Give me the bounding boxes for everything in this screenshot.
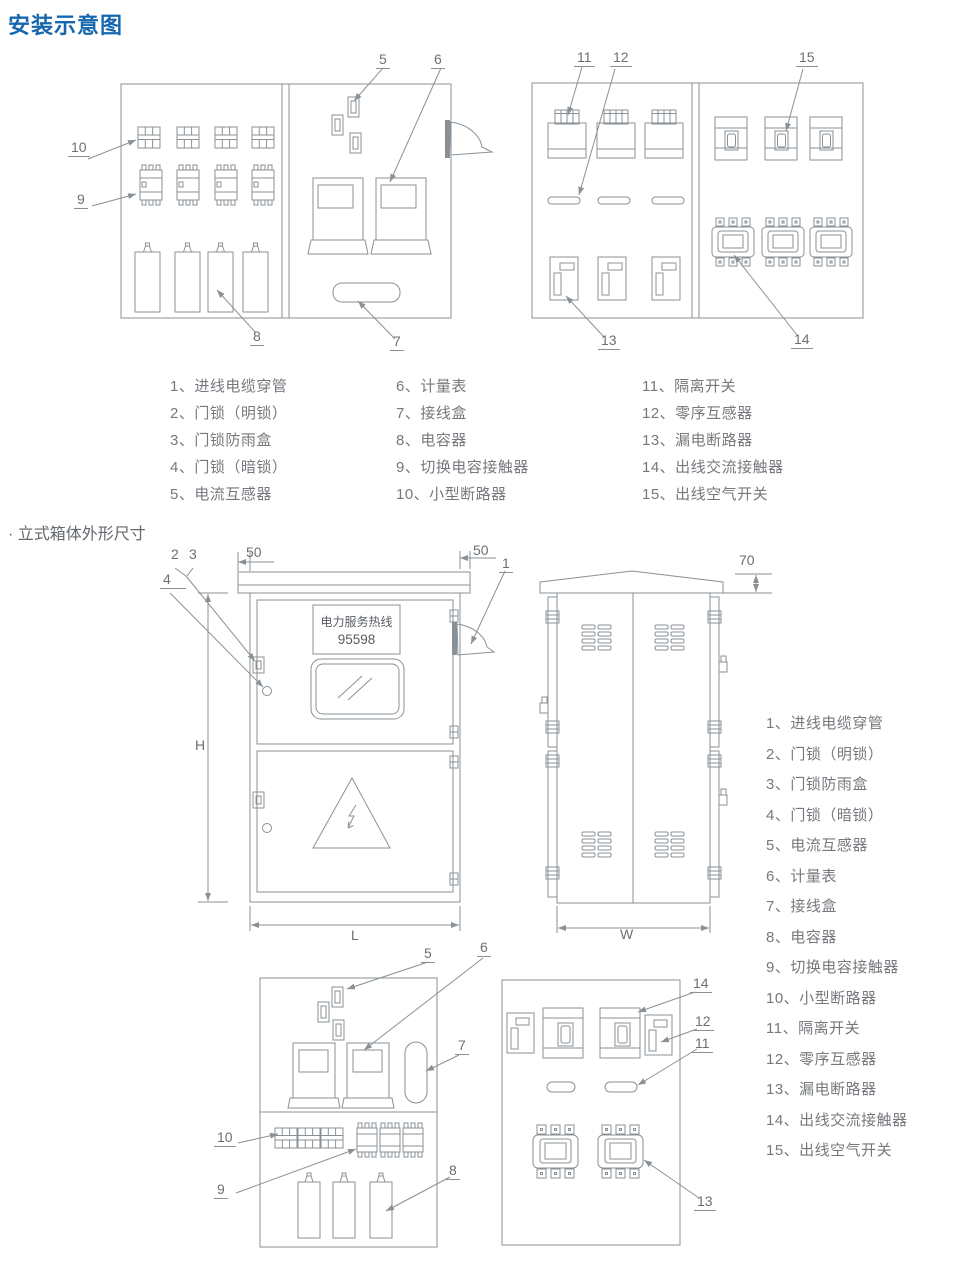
dim-70: 70 (739, 553, 755, 568)
meters (308, 178, 431, 254)
leakage-breaker-row (550, 257, 680, 300)
ac-contactor-row (533, 1125, 643, 1178)
callout-12: 12 (610, 50, 632, 67)
legend-item: 7、接线盒 (396, 402, 467, 423)
legend-item: 7、接线盒 (766, 895, 837, 916)
legend-item: 6、计量表 (766, 865, 837, 886)
legend-item: 1、进线电缆穿管 (170, 375, 287, 396)
bottom-left-cabinet-drawing (210, 945, 500, 1261)
warning-triangle (313, 778, 390, 848)
current-transformers (332, 97, 361, 153)
dimension-lines (557, 574, 772, 933)
legend-item: 1、进线电缆穿管 (766, 712, 883, 733)
legend-item: 11、隔离开关 (766, 1017, 860, 1038)
legend-item: 15、出线空气开关 (642, 483, 768, 504)
callout-11: 11 (692, 1036, 713, 1053)
junction-box-symbol (405, 1042, 427, 1103)
legend-item: 12、零序互感器 (642, 402, 753, 423)
legend-item: 3、门锁防雨盒 (170, 429, 272, 450)
callout-15: 15 (796, 50, 818, 67)
page-title: 安装示意图 (8, 8, 123, 40)
meters (288, 1043, 394, 1108)
legend-item: 5、电流互感器 (766, 834, 868, 855)
callout-7: 7 (455, 1038, 469, 1055)
callout-5: 5 (421, 946, 435, 963)
legend-item: 15、出线空气开关 (766, 1139, 892, 1160)
legend-item: 6、计量表 (396, 375, 467, 396)
isolating-switch-row (548, 110, 683, 158)
callout-4: 4 (160, 572, 186, 589)
cable-conduit-symbol (452, 622, 494, 655)
callout-8: 8 (446, 1163, 460, 1180)
upper-door-lock (253, 657, 264, 673)
dim-H: H (195, 738, 205, 753)
callout-3: 3 (186, 547, 200, 563)
mini-breaker-row (275, 1128, 343, 1148)
capacitor-row (135, 243, 268, 312)
mini-breaker-row (138, 127, 274, 148)
lower-door (257, 751, 453, 892)
callout-2: 2 (168, 547, 182, 563)
bottom-right-cabinet-drawing (490, 955, 760, 1261)
legend-item: 3、门锁防雨盒 (766, 773, 868, 794)
leader-lines (638, 992, 699, 1198)
callout-14: 14 (791, 332, 813, 349)
legend-item: 10、小型断路器 (766, 987, 877, 1008)
upper-hidden-lock (263, 687, 272, 696)
top-right-cabinet-drawing (510, 55, 930, 365)
installation-diagram-page: 安装示意图 (0, 0, 976, 1261)
legend-item: 11、隔离开关 (642, 375, 736, 396)
hotline-label: 电力服务热线 95598 (313, 605, 400, 654)
legend-item: 9、切换电容接触器 (396, 456, 529, 477)
callout-12: 12 (692, 1014, 714, 1031)
legend-item: 8、电容器 (396, 429, 467, 450)
legend-item: 14、出线交流接触器 (642, 456, 784, 477)
top-left-cabinet-drawing (70, 55, 510, 365)
cabinet-side-view-drawing (520, 545, 790, 945)
air-switch-row (715, 117, 842, 160)
callout-6: 6 (431, 52, 445, 69)
callout-8: 8 (250, 329, 264, 346)
legend-item: 2、门锁（明锁） (766, 743, 883, 764)
callout-10: 10 (214, 1130, 236, 1147)
legend-item: 8、电容器 (766, 926, 837, 947)
leader-lines (566, 67, 803, 337)
dim-50-right: 50 (473, 543, 489, 558)
zero-seq-ct-row (548, 197, 684, 204)
legend-item: 13、漏电断路器 (642, 429, 753, 450)
breaker-row (507, 1008, 672, 1058)
callout-6: 6 (477, 940, 491, 957)
legend-item: 9、切换电容接触器 (766, 956, 899, 977)
meter-window (311, 659, 404, 719)
callout-7: 7 (390, 334, 404, 351)
legend-item: 12、零序互感器 (766, 1048, 877, 1069)
callout-10: 10 (68, 140, 90, 157)
callout-1: 1 (499, 556, 513, 573)
junction-box-symbol (333, 283, 400, 302)
hotline-number: 95598 (338, 632, 376, 647)
capacitor-contactor-row (357, 1123, 423, 1157)
current-transformers (318, 987, 344, 1040)
dim-L: L (351, 928, 359, 943)
legend-item: 10、小型断路器 (396, 483, 507, 504)
dim-50-left: 50 (246, 545, 262, 560)
hotline-line1: 电力服务热线 (320, 613, 392, 630)
lower-door-lock (253, 792, 264, 808)
zero-seq-ct-row (547, 1082, 637, 1092)
ac-contactor-row (712, 218, 852, 266)
legend-item: 13、漏电断路器 (766, 1078, 877, 1099)
section-title: · 立式箱体外形尺寸 (8, 520, 146, 544)
legend-item: 4、门锁（暗锁） (766, 804, 883, 825)
callout-13: 13 (598, 333, 620, 350)
legend-item: 14、出线交流接触器 (766, 1109, 908, 1130)
legend-item: 4、门锁（暗锁） (170, 456, 287, 477)
callout-9: 9 (214, 1182, 228, 1199)
legend-item: 5、电流互感器 (170, 483, 272, 504)
callout-11: 11 (574, 50, 595, 67)
callout-14: 14 (690, 976, 712, 993)
roof (238, 572, 470, 593)
callout-5: 5 (376, 52, 390, 69)
roof (540, 571, 723, 593)
dim-W: W (620, 927, 633, 942)
lower-hidden-lock (263, 824, 272, 833)
capacitor-contactor-row (140, 165, 274, 205)
callout-9: 9 (74, 192, 88, 209)
legend-item: 2、门锁（明锁） (170, 402, 287, 423)
cable-conduit-symbol (445, 120, 492, 158)
callout-13: 13 (694, 1194, 716, 1211)
capacitor-row (298, 1173, 392, 1238)
